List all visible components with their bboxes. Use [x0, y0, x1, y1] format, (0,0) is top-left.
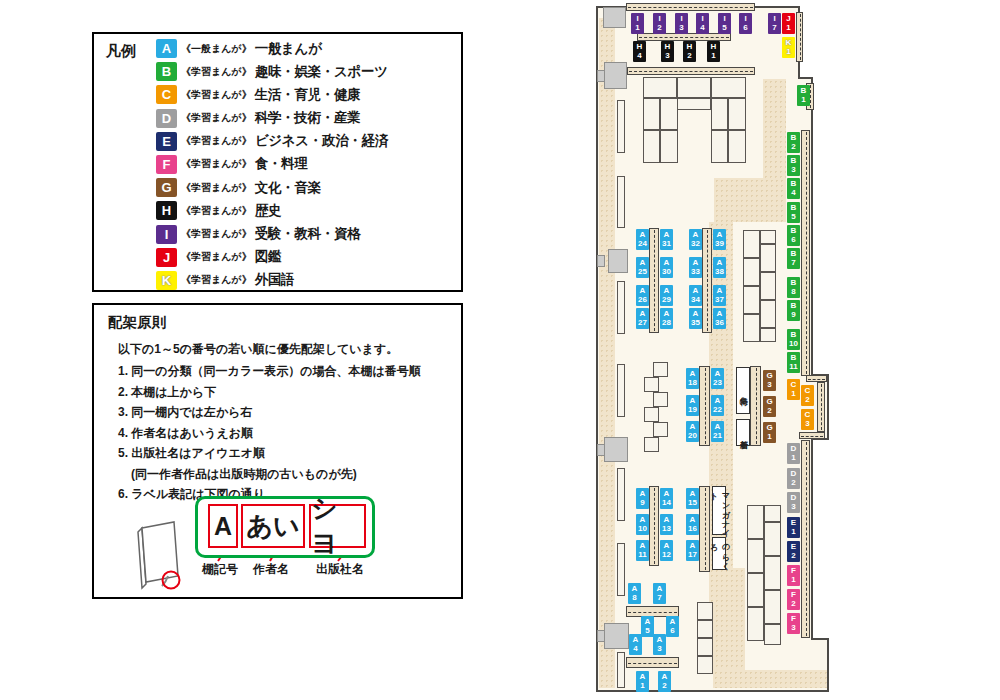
shelf-label-h1: H1 [707, 41, 720, 62]
shelf-label-c1: C1 [787, 379, 800, 400]
bookshelf [764, 590, 781, 624]
shelf-label-number: 3 [805, 420, 809, 429]
legend-chip-a: A [156, 39, 177, 58]
shelf-label-number: 20 [688, 432, 697, 441]
shelf-label-number: 30 [662, 268, 671, 277]
shelf-label-f1: F1 [787, 565, 800, 586]
bookshelf [764, 505, 781, 522]
diagram-box: シヨ [309, 504, 366, 548]
shelf-label-number: 25 [638, 268, 647, 277]
shelf-label-a19: A19 [686, 395, 699, 416]
shelf-label-g3: G3 [763, 370, 776, 391]
wall [811, 77, 813, 376]
shelf-label-number: 2 [767, 407, 771, 416]
shelf-label-b2: B2 [787, 132, 800, 153]
legend-chip-k: K [156, 271, 177, 290]
walkway [709, 568, 745, 672]
shelf-label-number: 3 [679, 24, 683, 33]
shelf-strip [801, 130, 810, 376]
legend-series-text: 《学習まんが》 [181, 204, 252, 218]
wall [827, 374, 829, 440]
shelf-label-h3: H3 [661, 41, 674, 62]
shelf-label-d2: D2 [787, 468, 800, 489]
shelf-label-a13: A13 [660, 514, 673, 535]
shelf-strip [626, 3, 755, 11]
legend-row: B《学習まんが》趣味・娯楽・スポーツ [156, 62, 388, 81]
shelf-label-number: 11 [789, 363, 797, 372]
shelf-label-number: 19 [688, 406, 697, 415]
shelf-label-b6: B6 [787, 225, 800, 246]
shelf-label-h4: H4 [633, 41, 646, 62]
door [604, 623, 629, 649]
shelf-label-a6: A6 [666, 616, 679, 637]
legend-row: F《学習まんが》食・料理 [156, 155, 388, 174]
shelf-label-a34: A34 [689, 285, 702, 306]
legend-category-text: 受験・教科・資格 [255, 225, 361, 243]
shelf-label-a27: A27 [636, 308, 649, 329]
shelf-strip [796, 12, 803, 62]
shelf-label-b11: B11 [787, 352, 800, 373]
bookshelf [697, 620, 713, 638]
shelf-label-number: 23 [713, 379, 722, 388]
legend-chip-d: D [156, 109, 177, 128]
shelf-label-number: 1 [801, 96, 805, 105]
legend-series-text: 《学習まんが》 [181, 181, 252, 195]
bookshelf [643, 130, 660, 163]
shelf-label-i7: I7 [768, 13, 781, 34]
shelf-label-number: 4 [633, 645, 637, 654]
legend-panel: 凡例 A《一般まんが》一般まんがB《学習まんが》趣味・娯楽・スポーツC《学習まん… [92, 32, 463, 292]
shelf-label-number: 5 [645, 627, 649, 636]
shelf-label-number: 21 [713, 432, 722, 441]
diagram-box: A [208, 504, 238, 548]
wall [811, 438, 813, 640]
shelf-label-number: 18 [688, 379, 697, 388]
principles-panel: 配架原則 以下の1～5の番号の若い順に優先配架しています。 1. 同一の分類（同… [92, 303, 463, 599]
shelf-label-a31: A31 [660, 229, 673, 250]
legend-series-text: 《学習まんが》 [181, 273, 252, 287]
shelf-label-a14: A14 [660, 488, 673, 509]
bookshelf [617, 281, 625, 334]
shelf-label-number: 4 [791, 189, 795, 198]
shelf-label-k1: K1 [782, 37, 795, 58]
wall [596, 6, 598, 692]
wall [596, 690, 829, 692]
bookshelf [743, 286, 760, 314]
walkway [763, 79, 786, 178]
shelf-label-e2: E2 [787, 541, 800, 562]
book-icon [138, 522, 180, 589]
shelf-label-a4: A4 [629, 634, 642, 655]
shelf-label-a26: A26 [636, 285, 649, 306]
legend-row: G《学習まんが》文化・音楽 [156, 178, 388, 197]
legend-row: I《学習まんが》受験・教科・資格 [156, 225, 388, 244]
door [604, 62, 627, 89]
legend-series-text: 《学習まんが》 [181, 250, 252, 264]
shelf-label-b7: B7 [787, 248, 800, 269]
legend-series-text: 《一般まんが》 [181, 42, 252, 56]
legend-category-text: 図鑑 [255, 248, 281, 266]
shelf-label-f2: F2 [787, 589, 800, 610]
bookshelf [764, 556, 781, 590]
shelf-label-b3: B3 [787, 155, 800, 176]
legend-category-text: 一般まんが [255, 40, 322, 58]
shelf-label-i3: I3 [675, 13, 688, 34]
bookshelf [747, 505, 764, 539]
shelf-strip [806, 375, 827, 382]
legend-category-text: 趣味・娯楽・スポーツ [255, 63, 388, 81]
shelf-label-number: 6 [743, 24, 747, 33]
map-area-label: マンガナイト [712, 486, 726, 535]
bookshelf [617, 468, 625, 521]
diagram-caption: 作者名 [253, 561, 289, 578]
bookshelf [747, 607, 764, 641]
legend-row: A《一般まんが》一般まんが [156, 39, 388, 58]
shelf-label-b4: B4 [787, 178, 800, 199]
shelf-label-number: 7 [772, 24, 776, 33]
shelf-label-number: 1 [640, 682, 644, 691]
legend-category-text: 生活・育児・健康 [255, 86, 361, 104]
shelf-label-a30: A30 [660, 257, 673, 278]
legend-chip-c: C [156, 85, 177, 104]
door-nub [597, 444, 605, 456]
shelf-label-j1: J1 [782, 13, 795, 34]
legend-row: J《学習まんが》図鑑 [156, 248, 388, 267]
shelf-strip [649, 228, 659, 333]
bookshelf [760, 230, 776, 244]
shelf-label-number: 6 [791, 236, 795, 245]
shelf-label-d3: D3 [787, 492, 800, 513]
bookshelf [644, 437, 659, 452]
shelf-label-number: 3 [791, 166, 795, 175]
bookshelf [728, 98, 746, 130]
shelf-label-a17: A17 [686, 540, 699, 561]
shelf-label-a36: A36 [713, 308, 726, 329]
bookshelf [743, 314, 760, 342]
shelf-label-g2: G2 [763, 396, 776, 417]
bookshelf [644, 407, 659, 422]
shelf-label-number: 39 [715, 240, 724, 249]
shelf-label-b9: B9 [787, 300, 800, 321]
shelf-label-number: 22 [713, 406, 722, 415]
shelf-label-number: 2 [791, 143, 795, 152]
bookshelf [747, 539, 764, 573]
door-nub [597, 630, 605, 642]
legend-chip-i: I [156, 225, 177, 244]
shelf-label-number: 2 [791, 479, 795, 488]
shelf-label-number: 9 [791, 311, 795, 320]
shelf-label-a9: A9 [636, 488, 649, 509]
floor-map-page: 凡例 A《一般まんが》一般まんがB《学習まんが》趣味・娯楽・スポーツC《学習まん… [0, 0, 1000, 700]
shelf-label-number: 4 [700, 24, 704, 33]
bookshelf [677, 77, 711, 98]
bookshelf [660, 98, 678, 130]
shelf-label-number: 3 [657, 645, 661, 654]
shelf-strip [626, 657, 679, 668]
shelf-strip [637, 33, 731, 41]
legend-chip-f: F [156, 155, 177, 174]
shelf-label-number: 8 [632, 594, 636, 603]
shelf-label-number: 5 [722, 24, 726, 33]
shelf-label-a35: A35 [689, 308, 702, 329]
shelf-label-number: 11 [638, 551, 646, 560]
bookshelf [697, 638, 713, 656]
shelf-label-a21: A21 [711, 421, 724, 442]
bookshelf [617, 176, 625, 228]
shelf-label-number: 6 [670, 627, 674, 636]
shelf-strip [799, 432, 825, 439]
shelf-label-c2: C2 [801, 385, 814, 406]
shelf-label-number: 1 [786, 24, 790, 33]
bookshelf [760, 272, 776, 300]
shelf-label-number: 8 [791, 288, 795, 297]
bookshelf [743, 258, 760, 286]
shelf-strip [702, 228, 712, 333]
shelf-label-number: 3 [791, 503, 795, 512]
bookshelf [617, 652, 625, 688]
shelf-label-number: 10 [789, 340, 798, 349]
map-area-label: 特集 [736, 367, 750, 414]
shelf-label-a2: A2 [658, 671, 671, 692]
shelf-label-c3: C3 [801, 409, 814, 430]
shelf-strip [649, 486, 659, 566]
shelf-label-a1: A1 [636, 671, 649, 692]
bookshelf [711, 130, 728, 163]
bookshelf [760, 244, 776, 272]
legend-category-text: 文化・音楽 [255, 179, 321, 197]
map-area-label: 新着 [736, 419, 750, 446]
shelf-label-number: 12 [662, 551, 671, 560]
legend-row: K《学習まんが》外国語 [156, 271, 388, 290]
bookshelf [764, 624, 781, 645]
legend-row: H《学習まんが》歴史 [156, 201, 388, 220]
shelf-label-number: 5 [791, 213, 795, 222]
legend-chip-g: G [156, 178, 177, 197]
legend-chip-j: J [156, 248, 177, 267]
legend-category-text: 歴史 [255, 202, 281, 220]
bookshelf [653, 392, 668, 407]
diagram-box: あい [241, 504, 305, 548]
bookshelf [653, 362, 668, 377]
shelf-label-number: 7 [791, 259, 795, 268]
door [608, 249, 628, 273]
shelf-label-number: 15 [688, 499, 697, 508]
shelf-label-number: 28 [662, 319, 671, 328]
shelf-label-number: 17 [688, 551, 697, 560]
shelf-label-number: 14 [662, 499, 671, 508]
shelf-label-a29: A29 [660, 285, 673, 306]
shelf-label-number: 4 [637, 52, 641, 61]
shelf-label-d1: D1 [787, 443, 800, 464]
shelf-label-number: 38 [715, 268, 724, 277]
legend-row: C《学習まんが》生活・育児・健康 [156, 85, 388, 104]
bookshelf [643, 77, 677, 98]
shelf-label-number: 1 [791, 576, 795, 585]
shelf-label-a38: A38 [713, 257, 726, 278]
shelf-label-f3: F3 [787, 613, 800, 634]
shelf-label-number: 27 [638, 319, 647, 328]
shelf-label-i5: I5 [718, 13, 731, 34]
legend-category-text: 科学・技術・産業 [255, 109, 361, 127]
shelf-label-i2: I2 [653, 13, 666, 34]
shelf-label-number: 29 [662, 296, 671, 305]
shelf-label-i4: I4 [696, 13, 709, 34]
legend-series-text: 《学習まんが》 [181, 65, 252, 79]
walkway [714, 178, 786, 222]
bookshelf [760, 328, 776, 342]
shelf-label-a16: A16 [686, 514, 699, 535]
shelf-label-a22: A22 [711, 395, 724, 416]
shelf-label-i1: I1 [631, 13, 644, 34]
shelf-label-a39: A39 [713, 229, 726, 250]
bookshelf [617, 364, 625, 417]
shelf-label-number: 34 [691, 296, 700, 305]
legend-category-text: 外国語 [255, 271, 295, 289]
map-area-label: のらくろ [712, 537, 726, 570]
shelf-label-a12: A12 [660, 540, 673, 561]
shelf-label-a23: A23 [711, 368, 724, 389]
shelf-label-e1: E1 [787, 517, 800, 538]
walkway [599, 18, 615, 688]
shelf-strip [750, 366, 761, 446]
bookshelf [697, 602, 713, 620]
shelf-label-number: 3 [791, 624, 795, 633]
shelf-label-number: 2 [791, 600, 795, 609]
door-nub [597, 70, 605, 82]
shelf-label-a15: A15 [686, 488, 699, 509]
shelf-label-number: 1 [791, 390, 795, 399]
diagram-caption: 棚記号 [202, 561, 238, 578]
door [603, 7, 626, 28]
legend-chip-h: H [156, 201, 177, 220]
shelf-label-a8: A8 [628, 583, 641, 604]
shelf-label-number: 2 [657, 24, 661, 33]
shelf-label-number: 16 [688, 525, 697, 534]
door [604, 437, 628, 462]
shelf-label-g1: G1 [763, 422, 776, 443]
shelf-label-number: 1 [635, 24, 639, 33]
shelf-label-number: 2 [662, 682, 666, 691]
shelf-strip [699, 366, 710, 446]
bookshelf [617, 543, 625, 596]
shelf-label-number: 35 [691, 319, 700, 328]
wall [827, 638, 829, 692]
shelf-label-number: 32 [691, 240, 700, 249]
shelf-label-number: 3 [665, 52, 669, 61]
shelf-label-number: 24 [638, 240, 647, 249]
bookshelf [653, 422, 668, 437]
legend-chip-b: B [156, 62, 177, 81]
legend-category-text: 食・料理 [255, 155, 308, 173]
shelf-label-number: 13 [662, 525, 671, 534]
bookshelf [760, 300, 776, 328]
shelf-label-number: 10 [638, 525, 647, 534]
shelf-label-a7: A7 [653, 583, 666, 604]
legend-title: 凡例 [106, 42, 136, 61]
bookshelf [743, 230, 760, 258]
shelf-label-number: 37 [715, 296, 724, 305]
shelf-label-number: 33 [691, 268, 700, 277]
shelf-label-a33: A33 [689, 257, 702, 278]
bookshelf [711, 98, 728, 130]
shelf-label-number: 1 [791, 528, 795, 537]
shelf-label-number: 26 [638, 296, 647, 305]
legend-row: E《学習まんが》ビジネス・政治・経済 [156, 132, 388, 151]
shelf-label-b10: B10 [787, 329, 800, 350]
shelf-label-number: 1 [786, 48, 790, 57]
shelf-label-i6: I6 [739, 13, 752, 34]
label-diagram: Aあいシヨ [195, 496, 375, 558]
shelf-label-a25: A25 [636, 257, 649, 278]
shelf-label-number: 1 [791, 454, 795, 463]
shelf-label-a32: A32 [689, 229, 702, 250]
walkway [713, 670, 827, 688]
bookshelf [644, 377, 659, 392]
legend-series-text: 《学習まんが》 [181, 157, 252, 171]
shelf-strip [817, 382, 825, 432]
shelf-label-number: 7 [657, 594, 661, 603]
shelf-label-b5: B5 [787, 202, 800, 223]
shelf-label-number: 1 [767, 433, 771, 442]
shelf-strip [801, 440, 810, 638]
bookshelf [660, 130, 678, 163]
shelf-strip [627, 67, 755, 75]
shelf-label-a37: A37 [713, 285, 726, 306]
shelf-label-number: 1 [711, 52, 715, 61]
shelf-label-number: 2 [791, 552, 795, 561]
legend-row: D《学習まんが》科学・技術・産業 [156, 109, 388, 128]
bookshelf [677, 98, 711, 110]
legend-series-text: 《学習まんが》 [181, 227, 252, 241]
legend-series-text: 《学習まんが》 [181, 88, 252, 102]
diagram-caption: 出版社名 [316, 561, 364, 578]
bookshelf [697, 656, 713, 674]
bookshelf [728, 130, 746, 163]
shelf-label-a28: A28 [660, 308, 673, 329]
bookshelf [617, 100, 625, 153]
shelf-label-number: 2 [687, 52, 691, 61]
shelf-label-b1: B1 [797, 85, 810, 106]
shelf-label-a20: A20 [686, 421, 699, 442]
shelf-label-a10: A10 [636, 514, 649, 535]
legend-category-text: ビジネス・政治・経済 [255, 132, 388, 150]
legend-rows: A《一般まんが》一般まんがB《学習まんが》趣味・娯楽・スポーツC《学習まんが》生… [156, 39, 388, 294]
shelf-label-number: 3 [767, 381, 771, 390]
legend-series-text: 《学習まんが》 [181, 134, 252, 148]
shelf-label-b8: B8 [787, 277, 800, 298]
legend-series-text: 《学習まんが》 [181, 111, 252, 125]
shelf-label-number: 36 [715, 319, 724, 328]
bookshelf [643, 98, 660, 130]
shelf-label-number: 9 [640, 499, 644, 508]
shelf-label-a3: A3 [653, 634, 666, 655]
bookshelf [711, 77, 746, 98]
door-nub [597, 255, 605, 267]
shelf-label-a24: A24 [636, 229, 649, 250]
shelf-label-h2: H2 [683, 41, 696, 62]
legend-chip-e: E [156, 132, 177, 151]
shelf-label-number: 2 [805, 396, 809, 405]
bookshelf [764, 522, 781, 556]
shelf-label-a11: A11 [636, 540, 649, 561]
shelf-label-number: 31 [662, 240, 671, 249]
bookshelf [747, 573, 764, 607]
shelf-label-a18: A18 [686, 368, 699, 389]
